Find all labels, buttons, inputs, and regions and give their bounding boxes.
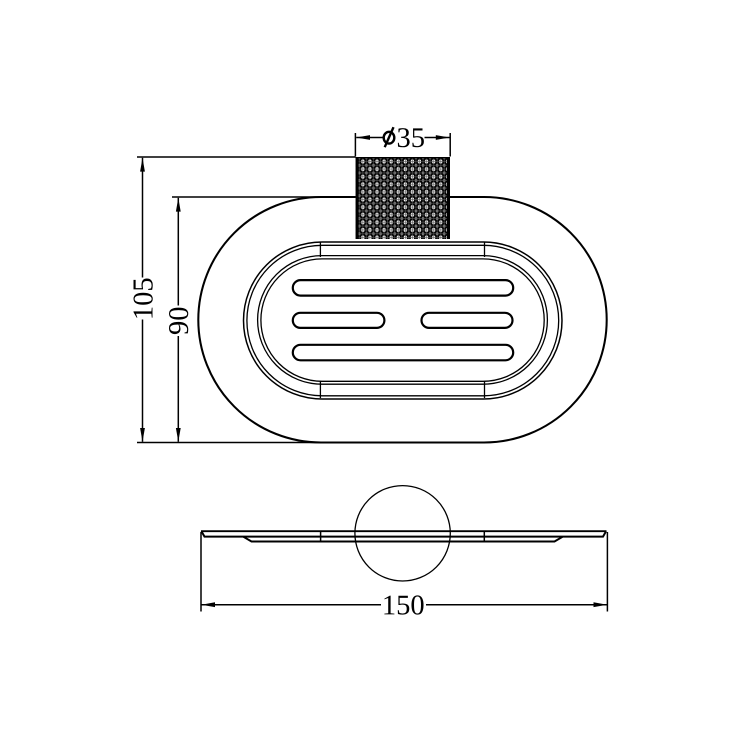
- svg-text:105: 105: [128, 277, 159, 320]
- svg-text:90: 90: [164, 306, 195, 335]
- svg-text:150: 150: [382, 590, 425, 621]
- svg-text:35: 35: [396, 123, 425, 154]
